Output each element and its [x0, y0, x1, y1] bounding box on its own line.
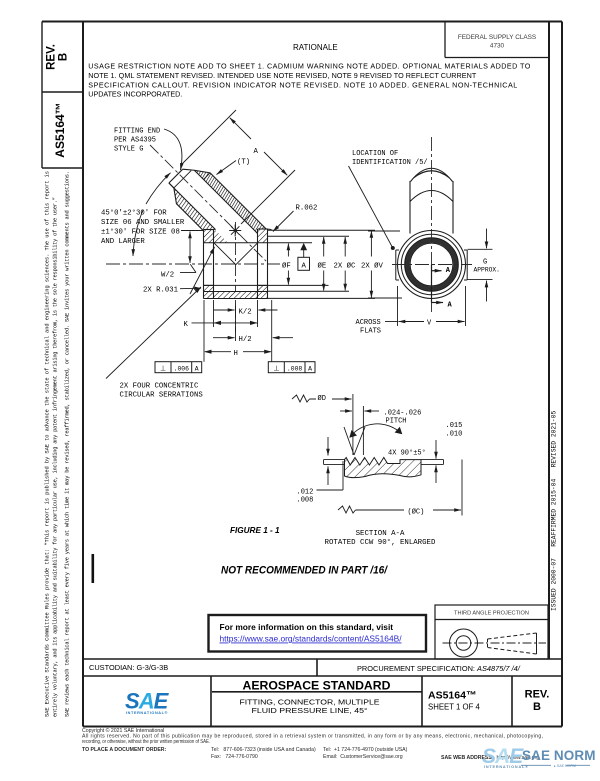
svg-text:UPDATES INCORPORATED.: UPDATES INCORPORATED.: [88, 90, 182, 99]
svg-text:K/2: K/2: [239, 308, 252, 316]
svg-text:PROCUREMENT SPECIFICATION: AS4: PROCUREMENT SPECIFICATION: AS4875/7 /4/: [357, 664, 521, 673]
svg-text:REV.: REV.: [46, 44, 58, 70]
svg-text:FITTING END: FITTING END: [114, 128, 160, 136]
svg-text:A: A: [302, 262, 307, 270]
svg-text:R.062: R.062: [296, 205, 318, 213]
svg-text:.024-.026: .024-.026: [384, 410, 422, 418]
svg-text:.006: .006: [174, 365, 190, 372]
svg-text:Tel: 877-606-7323 (inside US: Tel: 877-606-7323 (inside USA and Canada…: [211, 747, 316, 753]
svg-text:SAE NORM: SAE NORM: [522, 748, 596, 763]
svg-text:NOTE 1. QML STATEMENT REVISED.: NOTE 1. QML STATEMENT REVISED. INTENDED …: [88, 71, 477, 80]
svg-text:A: A: [308, 365, 312, 372]
svg-text:SIZE 06 AND SMALLER: SIZE 06 AND SMALLER: [101, 219, 185, 227]
svg-text:AS5164™: AS5164™: [428, 690, 476, 702]
svg-text:CIRCULAR SERRATIONS: CIRCULAR SERRATIONS: [120, 391, 204, 399]
svg-text:REV.: REV.: [525, 689, 550, 701]
svg-text:ISSUED 2000-07 REAFFIRMED 20: ISSUED 2000-07 REAFFIRMED 2015-04 REVISE…: [551, 411, 558, 611]
svg-text:CUSTODIAN: G-3/G-3B: CUSTODIAN: G-3/G-3B: [89, 663, 168, 672]
svg-text:https://www.sae.org/standards/: https://www.sae.org/standards/content/AS…: [220, 634, 403, 644]
svg-text:PITCH: PITCH: [386, 418, 407, 426]
svg-text:FIGURE 1 - 1: FIGURE 1 - 1: [230, 526, 280, 535]
svg-text:LOCATION OF: LOCATION OF: [352, 150, 398, 158]
svg-text:.012: .012: [297, 489, 314, 497]
svg-text:2X R.031: 2X R.031: [143, 286, 179, 294]
svg-text:RATIONALE: RATIONALE: [293, 43, 338, 52]
svg-text:FLUID PRESSURE LINE, 45°: FLUID PRESSURE LINE, 45°: [252, 706, 368, 715]
svg-text:ROTATED CCW 90°, ENLARGED: ROTATED CCW 90°, ENLARGED: [325, 538, 436, 547]
svg-text:2X ØC: 2X ØC: [334, 261, 357, 270]
svg-text:ACROSS: ACROSS: [356, 319, 381, 327]
svg-text:USAGE RESTRICTION NOTE ADD TO: USAGE RESTRICTION NOTE ADD TO SHEET 1. C…: [88, 61, 530, 70]
svg-text:SHEET 1 OF 4: SHEET 1 OF 4: [428, 703, 481, 712]
svg-text:Email: CustomerService@sae.or: Email: CustomerService@sae.org: [323, 754, 403, 760]
svg-text:ØD: ØD: [318, 394, 326, 403]
svg-text:B: B: [58, 53, 70, 61]
svg-text:▸ SAE NORM: ▸ SAE NORM: [554, 764, 576, 768]
svg-text:ØF: ØF: [282, 261, 291, 270]
svg-text:APPROX.: APPROX.: [474, 267, 500, 274]
svg-text:45°0'±2°30' FOR: 45°0'±2°30' FOR: [101, 209, 167, 218]
svg-text:.010: .010: [446, 431, 463, 439]
svg-text:FLATS: FLATS: [360, 328, 381, 336]
svg-text:(T): (T): [237, 159, 250, 167]
svg-text:TO PLACE A DOCUMENT ORDER:: TO PLACE A DOCUMENT ORDER:: [82, 747, 167, 753]
svg-text:SAE: SAE: [125, 689, 170, 714]
svg-text:FEDERAL SUPPLY CLASS: FEDERAL SUPPLY CLASS: [458, 34, 536, 41]
svg-text:2X FOUR CONCENTRIC: 2X FOUR CONCENTRIC: [120, 382, 199, 390]
svg-text:A: A: [254, 148, 259, 156]
svg-text:2X ØV: 2X ØV: [361, 261, 384, 270]
svg-text:⊥: ⊥: [273, 366, 279, 374]
svg-text:Tel: +1 724-776-4970 (outside: Tel: +1 724-776-4970 (outside USA): [323, 747, 408, 753]
svg-text:K: K: [184, 321, 189, 329]
svg-text:entirely voluntary, and its ap: entirely voluntary, and its applicabilit…: [53, 197, 59, 717]
svg-text:SAE reviews each technical rep: SAE reviews each technical report at lea…: [65, 171, 71, 717]
svg-text:.015: .015: [446, 422, 463, 430]
svg-text:4X 90°±5°: 4X 90°±5°: [388, 449, 426, 458]
svg-text:recording, or otherwise, witho: recording, or otherwise, without the pri…: [82, 739, 210, 745]
svg-text:.008: .008: [287, 365, 303, 372]
svg-text:SAE Executive Standards Commit: SAE Executive Standards Committee Rules …: [45, 171, 51, 717]
svg-text:G: G: [483, 259, 487, 267]
svg-text:A: A: [195, 365, 199, 372]
svg-text:PER AS4395: PER AS4395: [114, 137, 156, 145]
svg-text:H: H: [234, 350, 238, 358]
svg-text:Fax: 724-776-0790: Fax: 724-776-0790: [211, 754, 258, 760]
svg-text:THIRD ANGLE PROJECTION: THIRD ANGLE PROJECTION: [454, 611, 529, 617]
svg-text:SPECIFICATION CALLOUT. REVISIO: SPECIFICATION CALLOUT. REVISION INDICATO…: [88, 80, 517, 89]
svg-text:⊥: ⊥: [160, 366, 166, 374]
svg-text:(ØC): (ØC): [408, 507, 425, 516]
svg-text:4730: 4730: [490, 43, 505, 50]
svg-text:ØE: ØE: [318, 261, 327, 270]
svg-text:W/2: W/2: [161, 271, 174, 279]
svg-text:±1°30' FOR SIZE 08: ±1°30' FOR SIZE 08: [101, 228, 180, 237]
svg-text:NOT RECOMMENDED IN PART /16/: NOT RECOMMENDED IN PART /16/: [221, 565, 388, 577]
svg-text:SECTION A-A: SECTION A-A: [356, 530, 405, 538]
svg-text:INTERNATIONAL®: INTERNATIONAL®: [126, 711, 168, 715]
svg-text:H/2: H/2: [239, 336, 252, 344]
svg-text:STYLE G: STYLE G: [114, 146, 143, 154]
svg-text:AEROSPACE STANDARD: AEROSPACE STANDARD: [243, 679, 391, 693]
svg-text:.008: .008: [297, 497, 314, 505]
svg-text:AND LARGER: AND LARGER: [101, 238, 145, 246]
svg-text:AS5164™: AS5164™: [53, 102, 67, 157]
svg-text:For more information on this s: For more information on this standard, v…: [220, 622, 394, 632]
svg-text:IDENTIFICATION /5/: IDENTIFICATION /5/: [352, 159, 428, 167]
svg-text:B: B: [533, 701, 541, 713]
